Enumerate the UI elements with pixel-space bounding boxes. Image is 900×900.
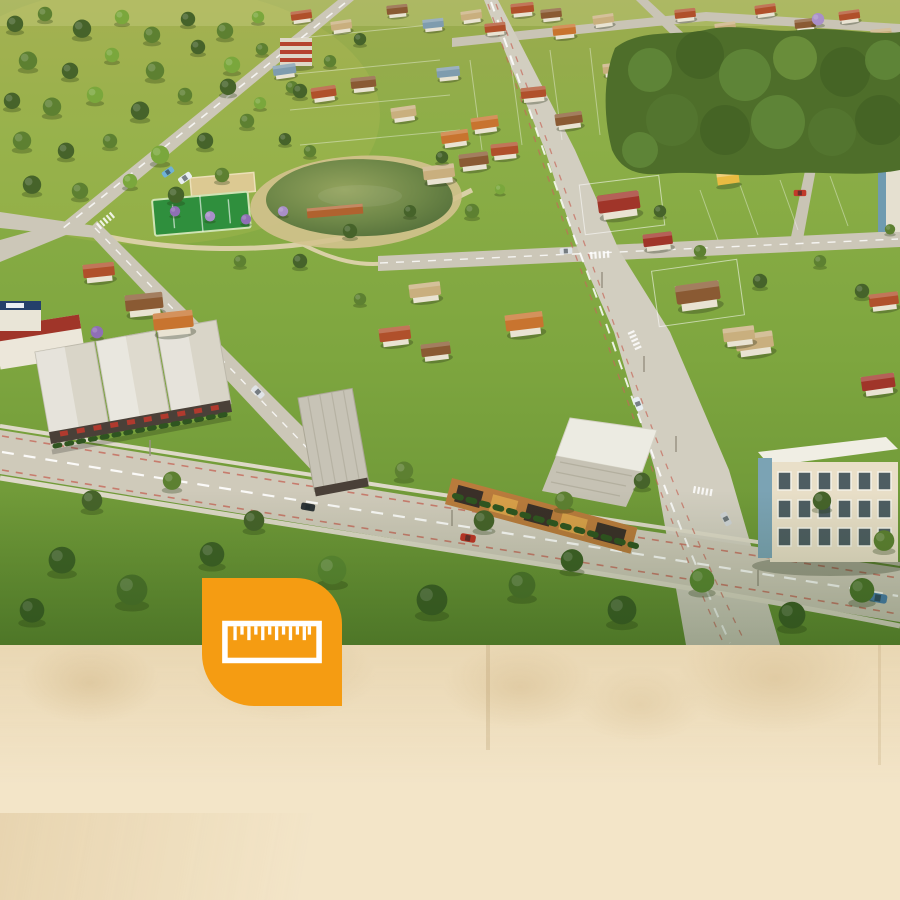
lot-size-badge [202, 578, 342, 706]
sports-court [152, 192, 251, 236]
aerial-masterplan-render [0, 0, 900, 645]
corner-store [0, 301, 41, 331]
ruler-icon [220, 618, 324, 666]
entry-building [878, 168, 900, 232]
forest [606, 27, 900, 175]
info-band: Amplos lotes com áreas de 300 a 579 m² [0, 645, 900, 900]
real-estate-ad-poster: Amplos lotes com áreas de 300 a 579 m² [0, 0, 900, 900]
